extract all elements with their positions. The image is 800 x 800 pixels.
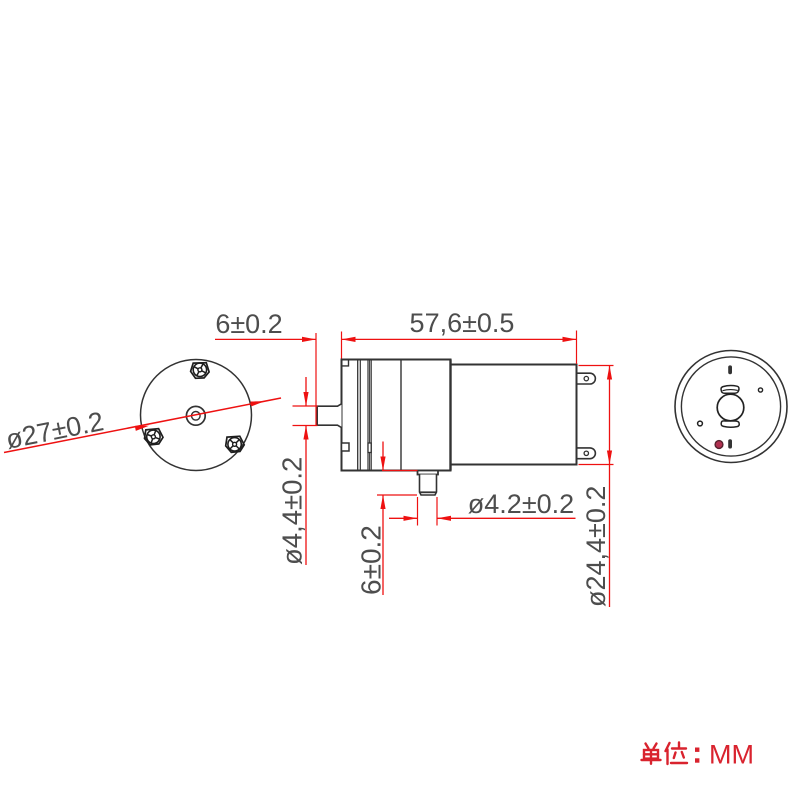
svg-text:ø24,4±0.2: ø24,4±0.2	[581, 486, 611, 607]
svg-text:MM: MM	[709, 740, 754, 770]
svg-text:ø4,4±0.2: ø4,4±0.2	[277, 457, 308, 565]
svg-text:ø4.2±0.2: ø4.2±0.2	[468, 489, 574, 519]
svg-text:6±0.2: 6±0.2	[356, 525, 387, 595]
svg-text:57,6±0.5: 57,6±0.5	[410, 308, 515, 338]
svg-text:6±0.2: 6±0.2	[215, 309, 282, 339]
